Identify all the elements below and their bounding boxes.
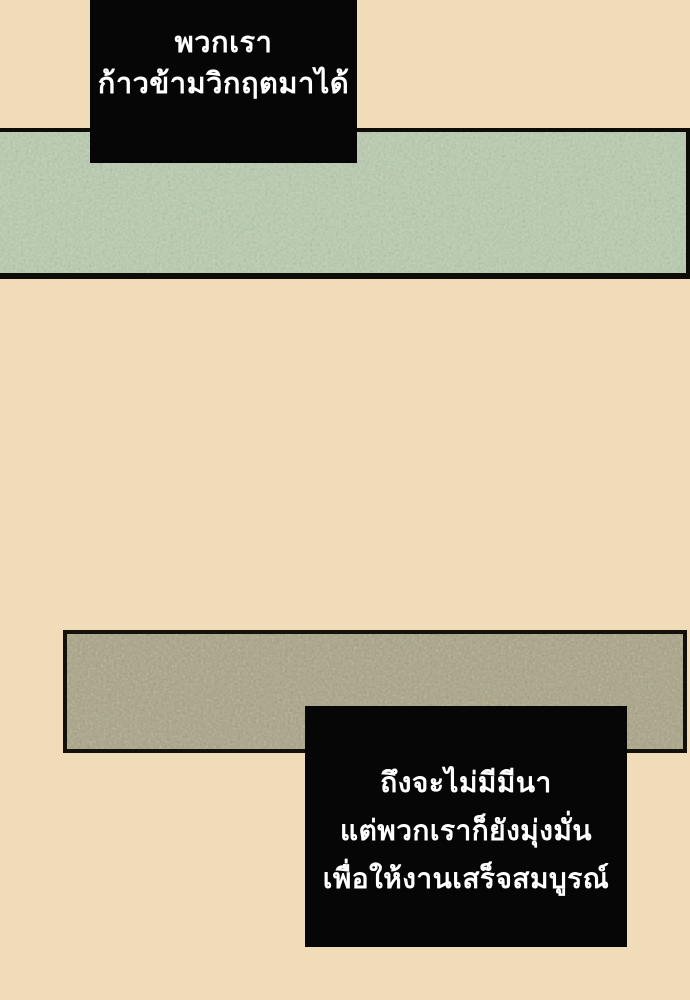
caption-bottom-line-1: ถึงจะไม่มีมีนา [380,759,551,807]
caption-box-bottom: ถึงจะไม่มีมีนา แต่พวกเราก็ยังมุ่งมั่น เพ… [305,706,627,947]
caption-bottom-line-3: เพื่อให้งานเสร็จสมบูรณ์ [323,855,609,903]
caption-box-top: พวกเรา ก้าวข้ามวิกฤตมาได้ [90,0,357,163]
comic-page: พวกเรา ก้าวข้ามวิกฤตมาได้ ถึงจะไม่มีมีนา… [0,0,690,1000]
caption-bottom-line-2: แต่พวกเราก็ยังมุ่งมั่น [340,807,592,855]
caption-top-line-1: พวกเรา [175,22,273,63]
caption-top-line-2: ก้าวข้ามวิกฤตมาได้ [98,63,349,104]
